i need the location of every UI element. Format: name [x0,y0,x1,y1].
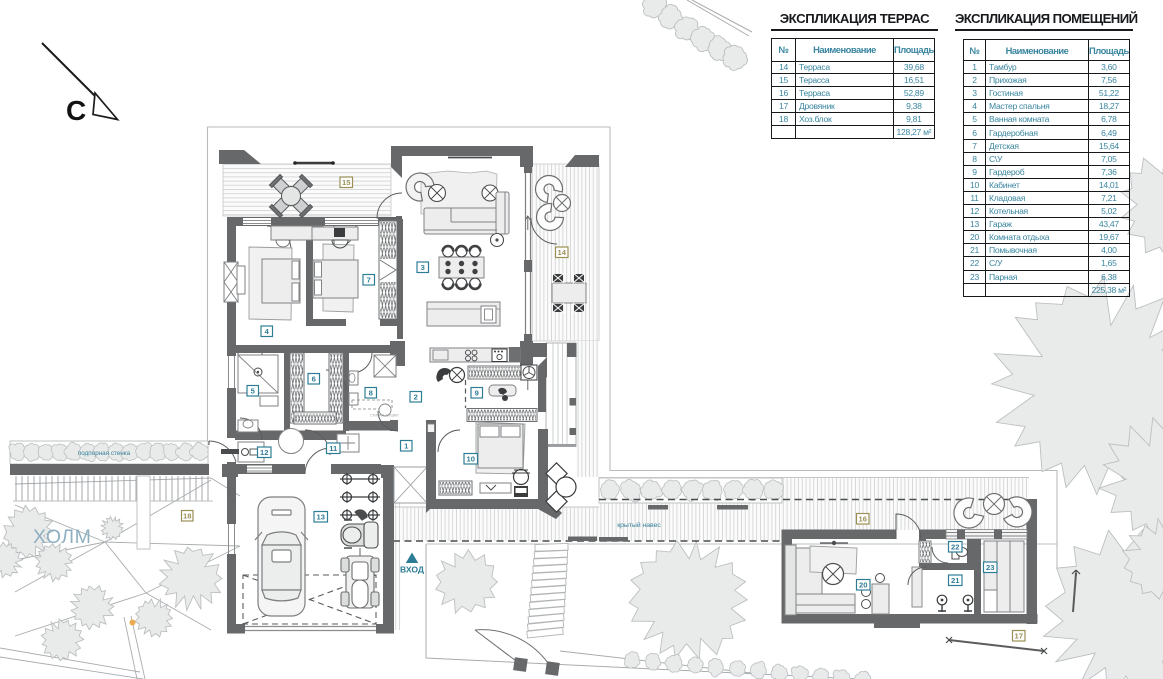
svg-text:17: 17 [1015,632,1023,641]
svg-text:22: 22 [951,543,959,552]
svg-text:крытый навес: крытый навес [617,521,661,529]
svg-text:3: 3 [421,263,425,272]
svg-text:6: 6 [312,375,316,384]
svg-text:11: 11 [329,444,338,453]
svg-text:2: 2 [414,393,418,402]
svg-text:ВХОД: ВХОД [400,565,424,575]
svg-text:15: 15 [342,178,351,187]
svg-text:подпорная стенка: подпорная стенка [78,450,131,457]
svg-text:23: 23 [986,563,994,572]
svg-text:20: 20 [859,581,867,590]
svg-text:9: 9 [475,389,479,398]
svg-text:16: 16 [859,515,867,524]
svg-text:10: 10 [467,455,475,464]
svg-text:12: 12 [260,448,268,457]
svg-text:СТИРАЛ. СУШИЛ: СТИРАЛ. СУШИЛ [370,414,399,418]
svg-text:С: С [66,95,86,126]
svg-text:7: 7 [367,276,371,285]
svg-text:8: 8 [369,389,373,398]
svg-text:14: 14 [558,248,567,257]
svg-text:13: 13 [317,513,325,522]
svg-text:ХОЛМ: ХОЛМ [33,526,91,548]
svg-text:18: 18 [183,512,191,521]
svg-text:21: 21 [951,576,960,585]
